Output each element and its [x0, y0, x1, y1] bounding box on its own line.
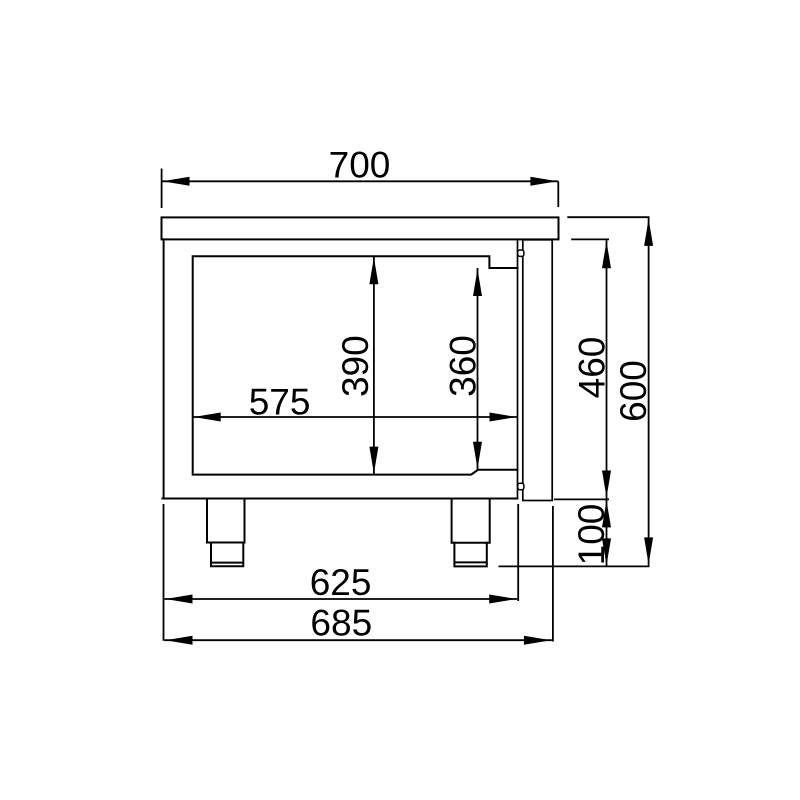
svg-text:625: 625 [310, 562, 372, 603]
svg-text:460: 460 [572, 337, 613, 399]
svg-text:685: 685 [310, 603, 372, 644]
svg-text:390: 390 [335, 335, 376, 397]
svg-text:600: 600 [613, 360, 654, 422]
svg-text:575: 575 [249, 382, 311, 423]
svg-text:700: 700 [329, 145, 391, 186]
svg-text:100: 100 [571, 504, 612, 566]
svg-text:360: 360 [442, 335, 483, 397]
